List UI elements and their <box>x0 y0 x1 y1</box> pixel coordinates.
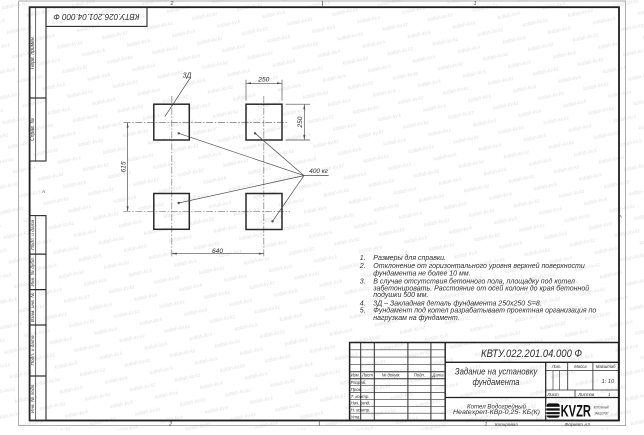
svg-text:3Д – Закладная деталь фундамен: 3Д – Закладная деталь фундамента 250х250… <box>373 299 541 307</box>
svg-text:1: 10: 1: 10 <box>602 379 615 385</box>
svg-text:Перв. примен.: Перв. примен. <box>30 36 36 69</box>
svg-text:2: 2 <box>170 1 174 7</box>
svg-text:2.: 2. <box>359 263 366 270</box>
svg-text:Задание на установку: Задание на установку <box>455 367 539 377</box>
svg-text:250: 250 <box>297 116 304 128</box>
svg-text:Разраб.: Разраб. <box>351 380 367 385</box>
svg-text:Формат А3: Формат А3 <box>565 422 591 427</box>
svg-text:Подп.: Подп. <box>414 373 425 378</box>
svg-text:Размеры для справки.: Размеры для справки. <box>373 254 446 262</box>
svg-text:КВТУ.026.201.04.000 Ф: КВТУ.026.201.04.000 Ф <box>53 12 139 22</box>
svg-text:ЗАВОД РЭП: ЗАВОД РЭП <box>594 410 608 415</box>
svg-text:400 кг: 400 кг <box>309 168 328 175</box>
svg-text:1: 1 <box>474 1 477 7</box>
svg-text:Изм.: Изм. <box>351 373 360 378</box>
svg-text:Нач. отд.: Нач. отд. <box>351 401 371 406</box>
svg-text:КВТУ.022.201.04.000 Ф: КВТУ.022.201.04.000 Ф <box>481 348 582 360</box>
svg-text:2: 2 <box>168 421 172 427</box>
svg-text:№ докум.: № докум. <box>382 373 401 378</box>
svg-text:Инв. № подл.: Инв. № подл. <box>30 383 36 413</box>
svg-text:Лист: Лист <box>361 373 373 378</box>
svg-text:фундамента: фундамента <box>473 377 520 387</box>
svg-text:Листов: Листов <box>577 392 595 397</box>
svg-text:Лист: Лист <box>546 392 559 397</box>
svg-text:Подп. и дата: Подп. и дата <box>30 335 36 365</box>
svg-text:615: 615 <box>120 161 127 172</box>
svg-text:Т. контр.: Т. контр. <box>351 394 370 399</box>
svg-text:Пров.: Пров. <box>351 387 363 392</box>
svg-text:А: А <box>41 189 45 194</box>
svg-text:Взам. инв. №: Взам. инв. № <box>30 292 36 322</box>
svg-text:фундамента не более 10 мм.: фундамента не более 10 мм. <box>373 270 470 278</box>
svg-text:А: А <box>618 214 622 219</box>
svg-text:Инв. № дубл.: Инв. № дубл. <box>30 257 36 287</box>
svg-text:КОТЕЛЬНЫЙ: КОТЕЛЬНЫЙ <box>594 404 609 409</box>
svg-text:Фундамент под котел разрабатыв: Фундамент под котел разрабатывает проект… <box>373 307 596 315</box>
svg-text:Справ. №: Справ. № <box>30 118 36 141</box>
svg-text:KVZR: KVZR <box>561 401 591 420</box>
svg-text:640: 640 <box>212 248 223 255</box>
svg-text:Отклонение от горизонтального: Отклонение от горизонтального уровня вер… <box>373 262 585 270</box>
svg-text:Лит.: Лит. <box>551 364 562 369</box>
svg-text:3.: 3. <box>360 278 366 285</box>
svg-text:Н. контр.: Н. контр. <box>351 408 371 413</box>
svg-text:нагрузкам на фундамент.: нагрузкам на фундамент. <box>373 314 459 322</box>
svg-text:Утв.: Утв. <box>351 415 361 420</box>
svg-text:1: 1 <box>485 422 488 428</box>
svg-text:Дата: Дата <box>431 373 444 378</box>
svg-text:250: 250 <box>257 76 269 83</box>
svg-text:5.: 5. <box>360 308 366 315</box>
svg-text:3Д: 3Д <box>183 72 192 79</box>
svg-text:подушки 500 мм.: подушки 500 мм. <box>373 291 428 299</box>
svg-text:4.: 4. <box>360 300 366 307</box>
svg-text:Масштаб: Масштаб <box>596 364 616 369</box>
svg-text:Heatexpert-КВр-0,25- КБ(К): Heatexpert-КВр-0,25- КБ(К) <box>453 409 540 416</box>
svg-text:Копировал: Копировал <box>495 422 518 427</box>
svg-text:В случае отсутствия бетонного: В случае отсутствия бетонного пола, площ… <box>373 277 575 285</box>
svg-text:Масса: Масса <box>574 364 587 369</box>
svg-text:Подп. и дата: Подп. и дата <box>30 219 36 249</box>
svg-text:1.: 1. <box>360 255 366 262</box>
